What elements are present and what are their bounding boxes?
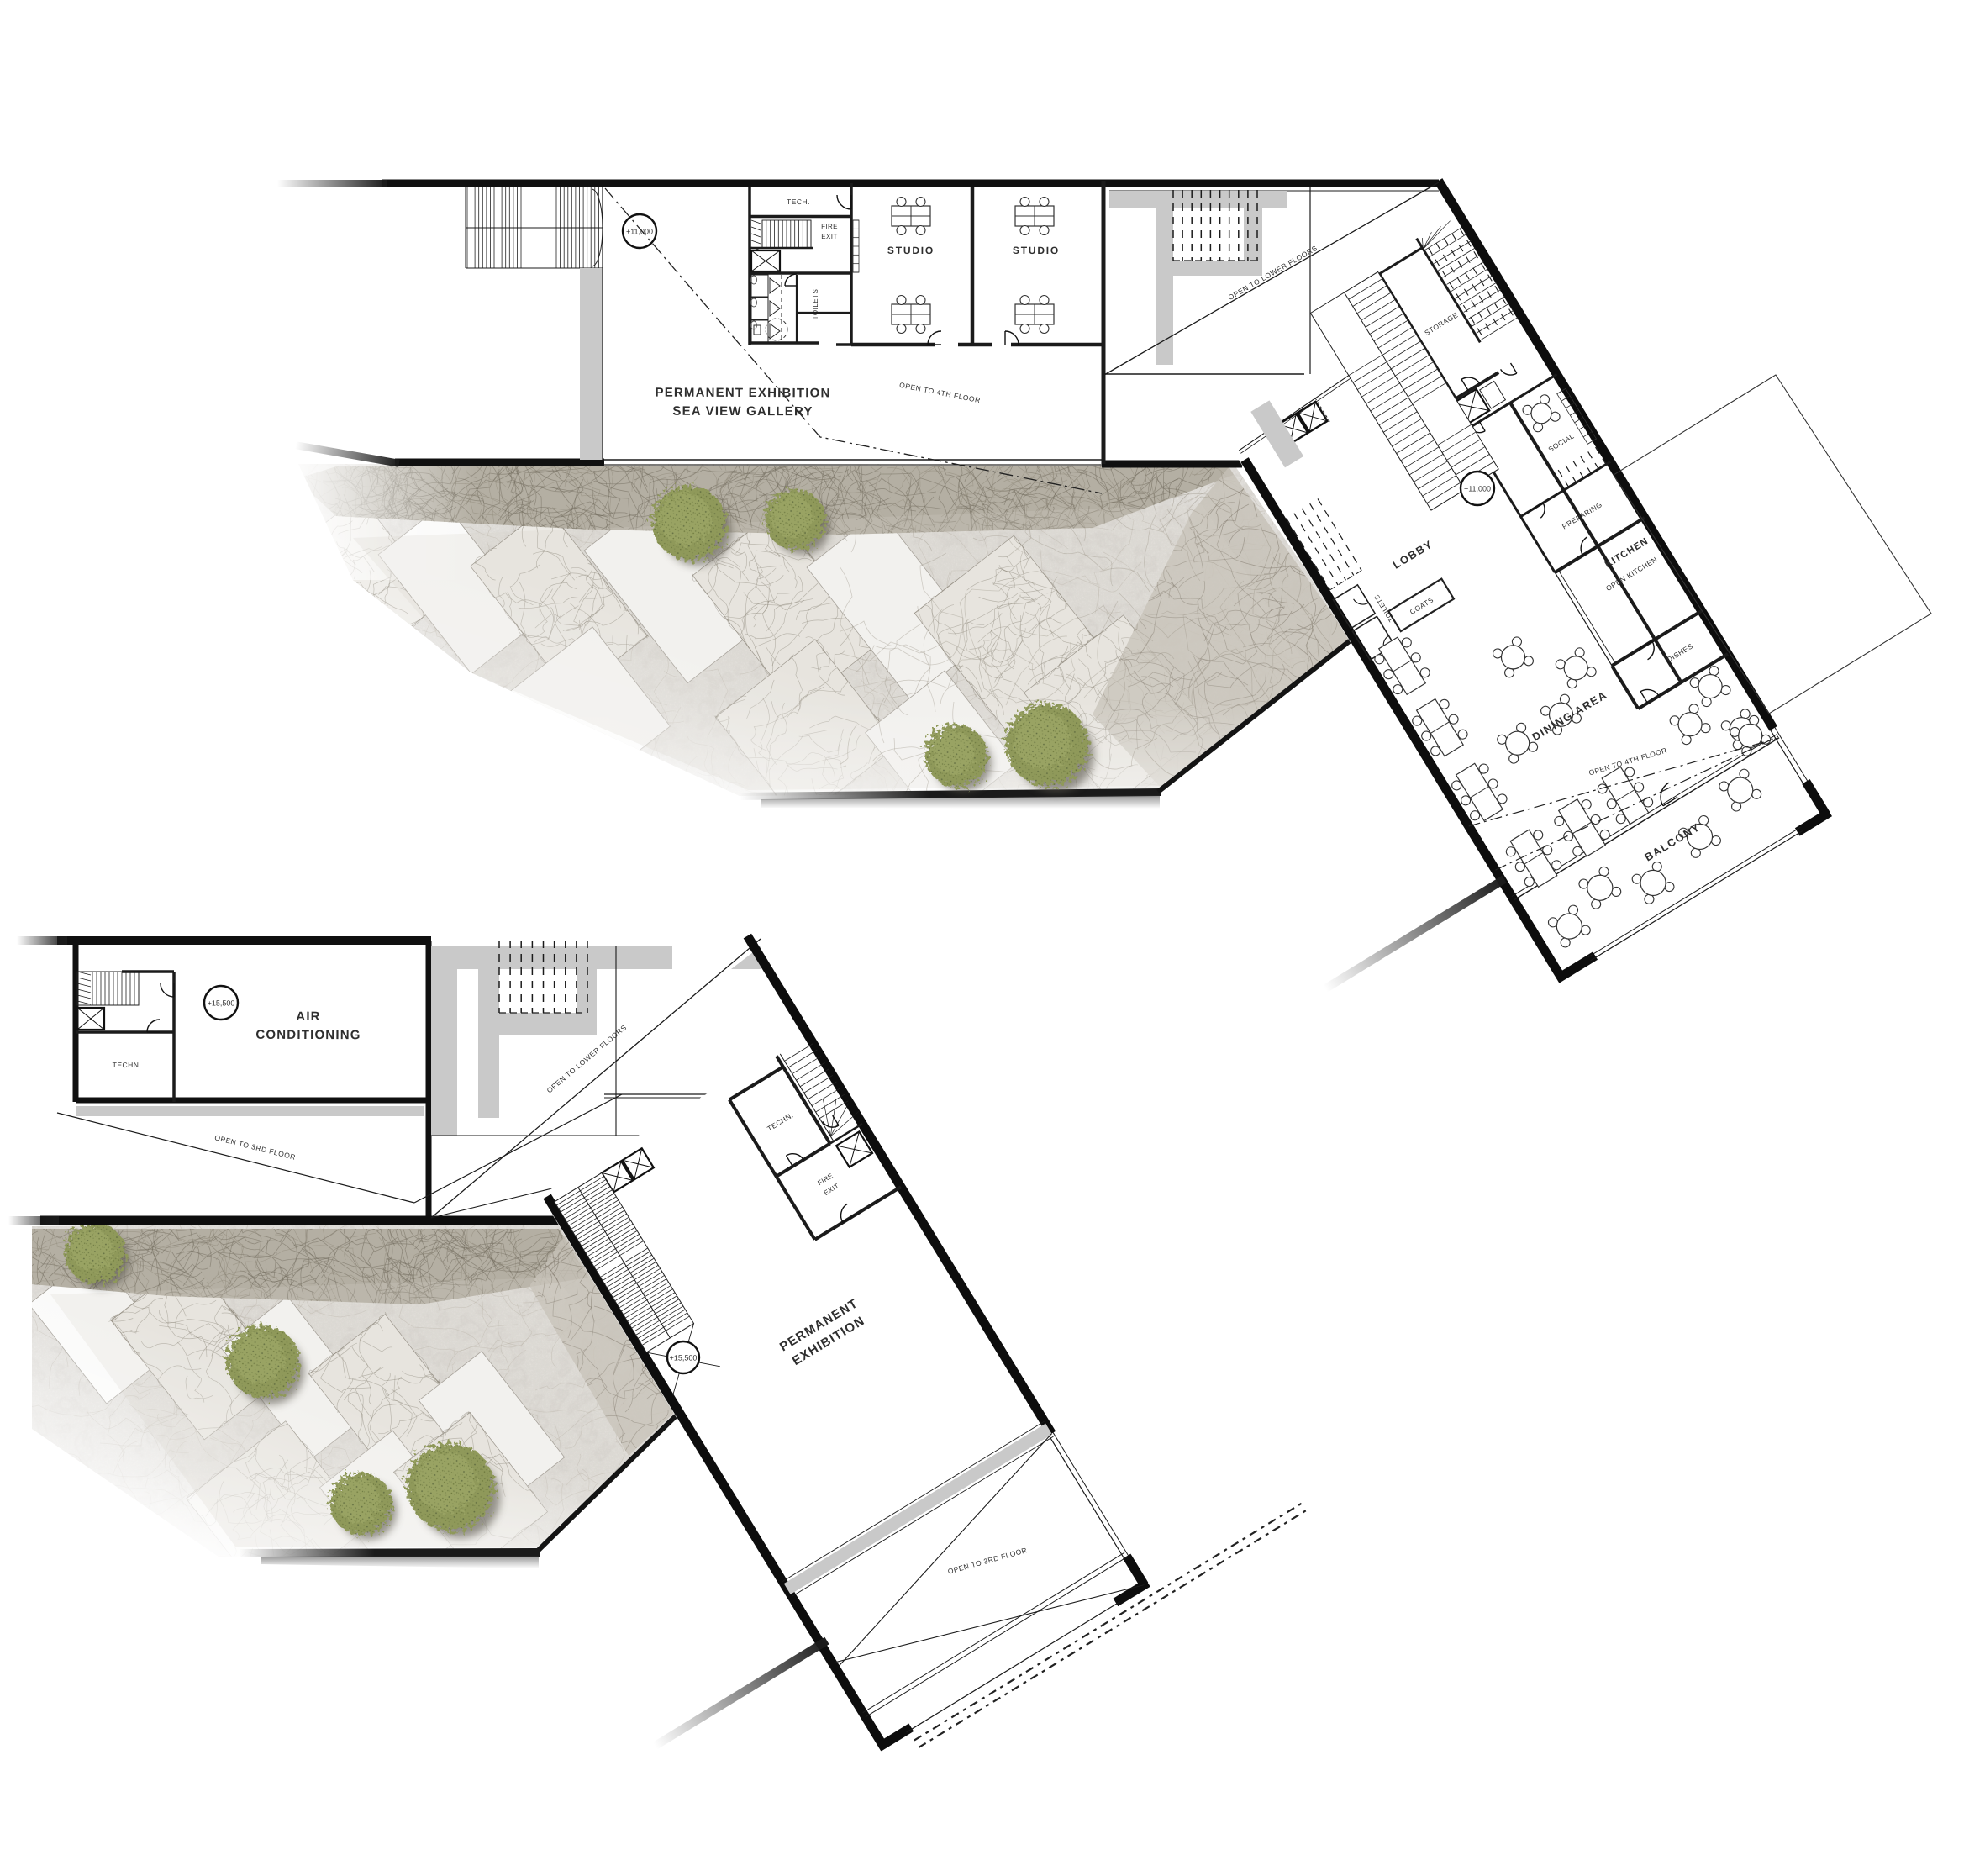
svg-text:STUDIO: STUDIO [887,245,935,256]
svg-text:TECH.: TECH. [787,198,810,206]
svg-text:PERMANENT EXHIBITION: PERMANENT EXHIBITION [655,386,830,401]
svg-text:TOILETS: TOILETS [812,289,819,320]
svg-text:AIR: AIR [296,1009,320,1024]
svg-text:+15,500: +15,500 [208,999,235,1007]
svg-text:CONDITIONING: CONDITIONING [255,1028,361,1042]
svg-text:+11,000: +11,000 [1464,484,1491,493]
svg-text:SEA VIEW GALLERY: SEA VIEW GALLERY [672,404,813,419]
svg-text:EXIT: EXIT [821,233,837,240]
svg-text:+15,500: +15,500 [670,1353,698,1362]
svg-text:FIRE: FIRE [821,223,838,230]
svg-text:STUDIO: STUDIO [1013,245,1060,256]
svg-text:TECHN.: TECHN. [113,1061,142,1069]
